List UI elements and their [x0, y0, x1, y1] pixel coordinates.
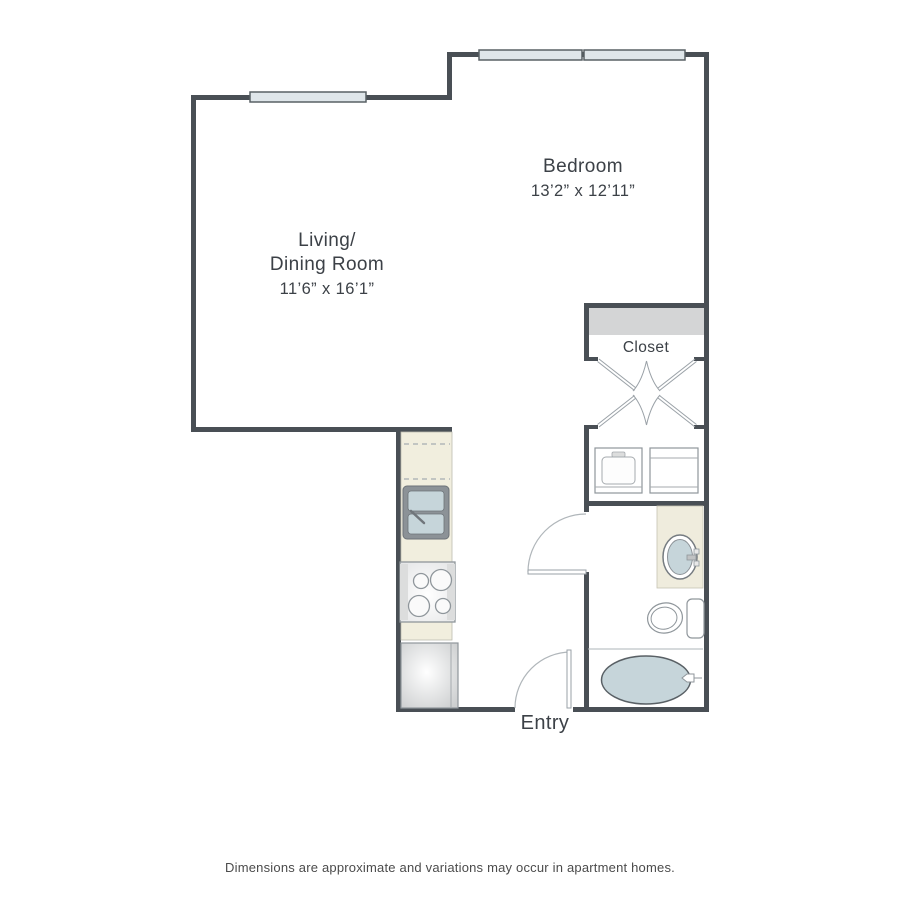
washer-icon	[595, 448, 642, 493]
wall-step	[447, 52, 452, 100]
bedroom-label: Bedroom	[531, 155, 635, 179]
wall-laundry-left	[584, 425, 589, 512]
disclaimer-text: Dimensions are approximate and variation…	[0, 860, 900, 876]
wall-left	[191, 95, 196, 432]
closet-label: Closet	[623, 339, 669, 356]
window-icon	[250, 92, 366, 102]
toilet-icon	[645, 599, 704, 638]
bathtub-icon	[602, 656, 703, 704]
wall-closet-left	[584, 303, 589, 361]
living-label-line1: Living/	[270, 229, 384, 253]
living-label-line2: Dining Room	[270, 253, 384, 277]
entry-door-icon	[515, 650, 571, 708]
window-icon	[584, 50, 685, 60]
bedroom-label-block: Bedroom 13’2” x 12’11”	[531, 155, 635, 204]
window-icon	[479, 50, 582, 60]
wall-closet-top	[584, 303, 709, 308]
bedroom-dimensions: 13’2” x 12’11”	[531, 179, 635, 204]
entry-label: Entry	[521, 711, 570, 735]
living-dimensions: 11’6” x 16’1”	[270, 277, 384, 302]
floorplan-page: Bedroom 13’2” x 12’11” Living/ Dining Ro…	[0, 0, 900, 900]
stove-icon	[400, 562, 455, 622]
bifold-doors-icon	[598, 359, 697, 427]
kitchen-sink-icon	[403, 486, 449, 539]
stub-closet-door-left	[584, 357, 598, 361]
wall-right	[704, 52, 709, 712]
stub-laundry-door-right	[694, 425, 709, 429]
stub-closet-door-right	[694, 357, 709, 361]
floorplan-drawing	[0, 0, 900, 900]
windows	[250, 50, 685, 102]
wall-bottom-right	[573, 707, 709, 712]
wall-laundry-bottom	[584, 501, 709, 506]
living-dining-label-block: Living/ Dining Room 11’6” x 16’1”	[270, 229, 384, 302]
wall-living-bottom	[191, 427, 452, 432]
wall-bath-left	[584, 572, 589, 712]
closet-shelf	[589, 308, 704, 335]
bathroom-door-icon	[528, 514, 586, 574]
dryer-icon	[650, 448, 698, 493]
refrigerator-icon	[401, 643, 458, 708]
